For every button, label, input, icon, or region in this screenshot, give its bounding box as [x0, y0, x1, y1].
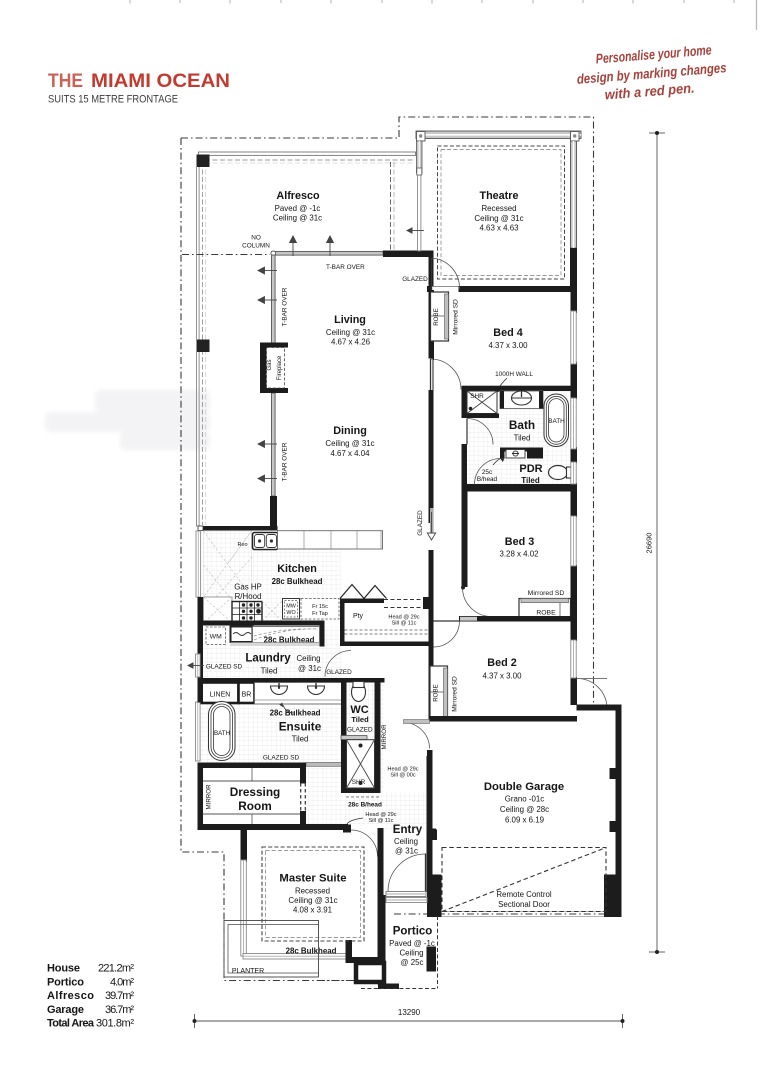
svg-text:Paved @ -1c: Paved @ -1c	[389, 939, 435, 948]
svg-text:MIRROR: MIRROR	[206, 784, 213, 810]
svg-text:Double Garage: Double Garage	[484, 781, 564, 793]
svg-text:MIRROR: MIRROR	[381, 724, 388, 750]
svg-text:BATH: BATH	[548, 418, 565, 425]
svg-text:Sectional Door: Sectional Door	[498, 900, 550, 909]
svg-text:T-BAR OVER: T-BAR OVER	[282, 287, 289, 326]
svg-text:Sill @ 00c: Sill @ 00c	[390, 773, 415, 779]
svg-text:Portico: Portico	[47, 976, 84, 988]
svg-text:ROBE: ROBE	[433, 308, 440, 326]
svg-text:Sill @ 11c: Sill @ 11c	[392, 621, 417, 627]
svg-text:Gas HP: Gas HP	[234, 583, 262, 592]
svg-text:Living: Living	[334, 314, 366, 326]
svg-text:GLAZED SD: GLAZED SD	[206, 664, 243, 671]
svg-text:Ensuite: Ensuite	[279, 720, 322, 734]
svg-text:@ 25c: @ 25c	[401, 958, 424, 967]
svg-text:ROBE: ROBE	[433, 684, 440, 702]
svg-text:Ceiling @ 28c: Ceiling @ 28c	[500, 805, 549, 814]
svg-text:Tiled: Tiled	[292, 735, 309, 744]
svg-text:Pty: Pty	[353, 613, 364, 620]
svg-text:28c B/head: 28c B/head	[348, 802, 382, 809]
svg-text:THE: THE	[48, 70, 83, 92]
svg-text:Bed 4: Bed 4	[493, 327, 522, 339]
svg-text:Garage: Garage	[47, 1004, 84, 1016]
svg-text:28c Bulkhead: 28c Bulkhead	[272, 577, 323, 586]
svg-text:R/Hood: R/Hood	[235, 592, 262, 601]
svg-text:Tiled: Tiled	[514, 434, 531, 443]
svg-text:4.63 x 4.63: 4.63 x 4.63	[479, 224, 519, 233]
svg-text:BATH: BATH	[214, 730, 230, 737]
svg-text:MIAMI OCEAN: MIAMI OCEAN	[91, 70, 230, 92]
svg-text:Tiled: Tiled	[261, 667, 278, 676]
svg-text:6.09 x 6.19: 6.09 x 6.19	[505, 816, 545, 825]
svg-text:1000H WALL: 1000H WALL	[495, 371, 533, 378]
svg-text:3.28 x 4.02: 3.28 x 4.02	[499, 550, 538, 559]
svg-text:4.37 x 3.00: 4.37 x 3.00	[482, 672, 522, 681]
svg-text:NO: NO	[251, 235, 261, 242]
svg-text:@ 31c: @ 31c	[395, 847, 418, 856]
svg-text:Ceiling @ 31c: Ceiling @ 31c	[474, 214, 523, 223]
svg-text:Alfresco: Alfresco	[47, 990, 94, 1002]
svg-text:GLAZED: GLAZED	[347, 727, 373, 734]
svg-text:Tiled: Tiled	[521, 476, 540, 485]
svg-text:13290: 13290	[398, 1008, 421, 1017]
svg-text:Mirrored SD: Mirrored SD	[452, 676, 459, 712]
svg-text:Kitchen: Kitchen	[277, 563, 317, 575]
svg-text:4.08 x 3.91: 4.08 x 3.91	[293, 906, 332, 915]
svg-text:4.0m²: 4.0m²	[110, 976, 134, 988]
svg-text:Total Area: Total Area	[47, 1018, 95, 1030]
svg-text:301.8m²: 301.8m²	[96, 1018, 134, 1030]
svg-text:4.37 x 3.00: 4.37 x 3.00	[488, 341, 528, 350]
svg-text:Tiled: Tiled	[351, 715, 369, 724]
svg-text:ROBE: ROBE	[536, 610, 556, 617]
svg-text:Dressing: Dressing	[230, 785, 280, 799]
svg-text:Gas: Gas	[267, 359, 273, 370]
svg-text:WM: WM	[210, 634, 222, 641]
svg-text:Laundry: Laundry	[245, 653, 291, 665]
svg-text:GLAZED: GLAZED	[417, 510, 424, 536]
svg-text:Ceiling @ 31c: Ceiling @ 31c	[288, 896, 337, 905]
svg-text:25c: 25c	[482, 469, 493, 476]
svg-text:Bath: Bath	[509, 418, 535, 432]
svg-text:BR: BR	[242, 692, 252, 699]
svg-text:Ceiling @ 31c: Ceiling @ 31c	[326, 328, 375, 337]
svg-text:GLAZED: GLAZED	[326, 669, 352, 676]
svg-text:MW: MW	[286, 604, 296, 610]
svg-text:Theatre: Theatre	[479, 190, 518, 202]
svg-text:Ceiling @ 31c: Ceiling @ 31c	[325, 439, 374, 448]
svg-text:PLANTER: PLANTER	[232, 968, 264, 975]
svg-text:26690: 26690	[645, 533, 654, 554]
svg-text:4.67 x 4.26: 4.67 x 4.26	[331, 338, 371, 347]
svg-text:Ceiling: Ceiling	[296, 654, 320, 663]
svg-text:T-BAR OVER: T-BAR OVER	[326, 264, 365, 271]
svg-text:39.7m²: 39.7m²	[105, 990, 134, 1002]
svg-text:Ceiling: Ceiling	[394, 837, 418, 846]
svg-text:Room: Room	[238, 799, 271, 813]
svg-text:WO: WO	[286, 610, 295, 616]
svg-text:Grano -01c: Grano -01c	[505, 795, 545, 804]
svg-text:Bed 3: Bed 3	[505, 536, 534, 548]
svg-text:Ceiling: Ceiling	[399, 949, 423, 958]
svg-text:36.7m²: 36.7m²	[105, 1004, 134, 1016]
svg-text:GLAZED: GLAZED	[402, 276, 428, 283]
svg-text:28c Bulkhead: 28c Bulkhead	[264, 636, 315, 645]
svg-text:Dining: Dining	[333, 425, 367, 437]
svg-text:28c Bulkhead: 28c Bulkhead	[286, 947, 337, 956]
svg-text:Fr Tap: Fr Tap	[312, 611, 328, 617]
svg-text:SHR: SHR	[352, 779, 366, 786]
svg-text:Entry: Entry	[393, 824, 423, 836]
svg-text:221.2m²: 221.2m²	[98, 963, 134, 975]
svg-text:COLUMN: COLUMN	[242, 243, 270, 250]
svg-text:Recessed: Recessed	[481, 204, 516, 213]
svg-text:Alfresco: Alfresco	[276, 190, 320, 202]
svg-text:SHR: SHR	[470, 393, 484, 400]
svg-text:Portico: Portico	[393, 926, 433, 938]
svg-text:Mirrored SD: Mirrored SD	[528, 590, 565, 597]
svg-text:@ 31c: @ 31c	[298, 664, 321, 673]
svg-text:Remote Control: Remote Control	[496, 890, 552, 899]
svg-text:Mirrored SD: Mirrored SD	[453, 299, 460, 335]
svg-text:Bed 2: Bed 2	[487, 657, 516, 669]
svg-text:Fr 15c: Fr 15c	[312, 604, 328, 610]
svg-text:T-BAR OVER: T-BAR OVER	[282, 442, 289, 481]
svg-text:Sill @ 11c: Sill @ 11c	[369, 818, 394, 824]
svg-text:Recessed: Recessed	[295, 887, 330, 896]
svg-text:House: House	[47, 963, 80, 975]
svg-text:28c Bulkhead: 28c Bulkhead	[270, 709, 321, 718]
svg-text:Reo: Reo	[237, 542, 247, 548]
svg-text:Fireplace: Fireplace	[277, 355, 283, 380]
svg-text:SUITS 15 METRE FRONTAGE: SUITS 15 METRE FRONTAGE	[48, 94, 178, 106]
svg-text:Paved @ -1c: Paved @ -1c	[275, 204, 321, 213]
svg-text:PDR: PDR	[519, 463, 542, 475]
svg-text:Master Suite: Master Suite	[279, 873, 346, 885]
svg-text:4.67 x 4.04: 4.67 x 4.04	[330, 449, 370, 458]
svg-text:GLAZED SD: GLAZED SD	[263, 755, 300, 762]
svg-text:B/head: B/head	[477, 476, 498, 483]
svg-text:Ceiling @ 31c: Ceiling @ 31c	[273, 214, 322, 223]
svg-text:LINEN: LINEN	[210, 692, 231, 699]
